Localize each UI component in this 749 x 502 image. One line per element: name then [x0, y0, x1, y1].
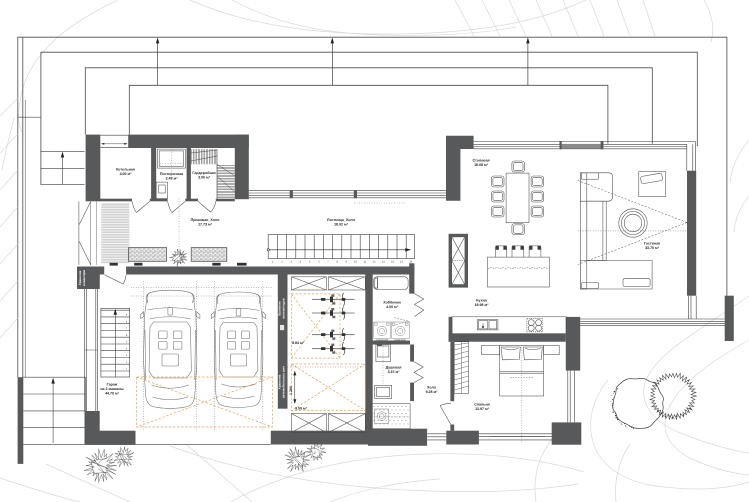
svg-text:33.70 м²: 33.70 м² — [645, 246, 660, 250]
svg-text:3.00 м²: 3.00 м² — [198, 176, 211, 180]
svg-text:44.70 м²: 44.70 м² — [105, 392, 120, 396]
svg-text:Хоббиная: Хоббиная — [383, 301, 400, 305]
svg-text:Прихожая_Холл: Прихожая_Холл — [191, 218, 220, 222]
svg-text:на 2 машины: на 2 машины — [100, 387, 123, 391]
svg-text:18.98 м²: 18.98 м² — [475, 303, 490, 307]
svg-text:Гостиная: Гостиная — [644, 242, 660, 246]
svg-text:Душевая: Душевая — [386, 366, 402, 370]
svg-text:велосипедов: велосипедов — [282, 298, 286, 318]
svg-text:4.00 м²: 4.00 м² — [386, 305, 399, 309]
svg-text:инвентаря: инвентаря — [82, 270, 86, 286]
svg-text:9.59 м²: 9.59 м² — [295, 407, 308, 411]
svg-text:сушильная: сушильная — [394, 339, 406, 342]
svg-text:1.280: 1.280 — [289, 386, 293, 395]
svg-text:13.97 м²: 13.97 м² — [475, 407, 490, 411]
svg-text:8.84 м²: 8.84 м² — [292, 341, 305, 345]
svg-text:Спальня: Спальня — [474, 403, 490, 407]
svg-text:Гараж: Гараж — [107, 383, 118, 387]
svg-text:Лестница_Холл: Лестница_Холл — [327, 218, 356, 222]
svg-text:Столовая: Столовая — [472, 159, 489, 163]
svg-text:18.08 м²: 18.08 м² — [474, 163, 489, 167]
svg-text:Постирочная: Постирочная — [160, 172, 183, 176]
svg-text:4.00 м²: 4.00 м² — [120, 172, 133, 176]
svg-text:стиральная: стиральная — [376, 339, 389, 342]
svg-text:17.73 м²: 17.73 м² — [198, 223, 213, 227]
svg-text:Кухня: Кухня — [476, 299, 487, 303]
svg-text:Холл: Холл — [427, 386, 437, 390]
svg-text:автомобильных шин: автомобильных шин — [282, 366, 286, 398]
svg-text:18.02 м²: 18.02 м² — [334, 223, 349, 227]
svg-text:3.15 м²: 3.15 м² — [388, 370, 401, 374]
svg-text:Котельная: Котельная — [116, 168, 135, 172]
svg-text:2.49 м²: 2.49 м² — [166, 177, 179, 181]
svg-text:9.28 м²: 9.28 м² — [426, 390, 439, 394]
svg-text:Гардеробная: Гардеробная — [192, 171, 215, 175]
